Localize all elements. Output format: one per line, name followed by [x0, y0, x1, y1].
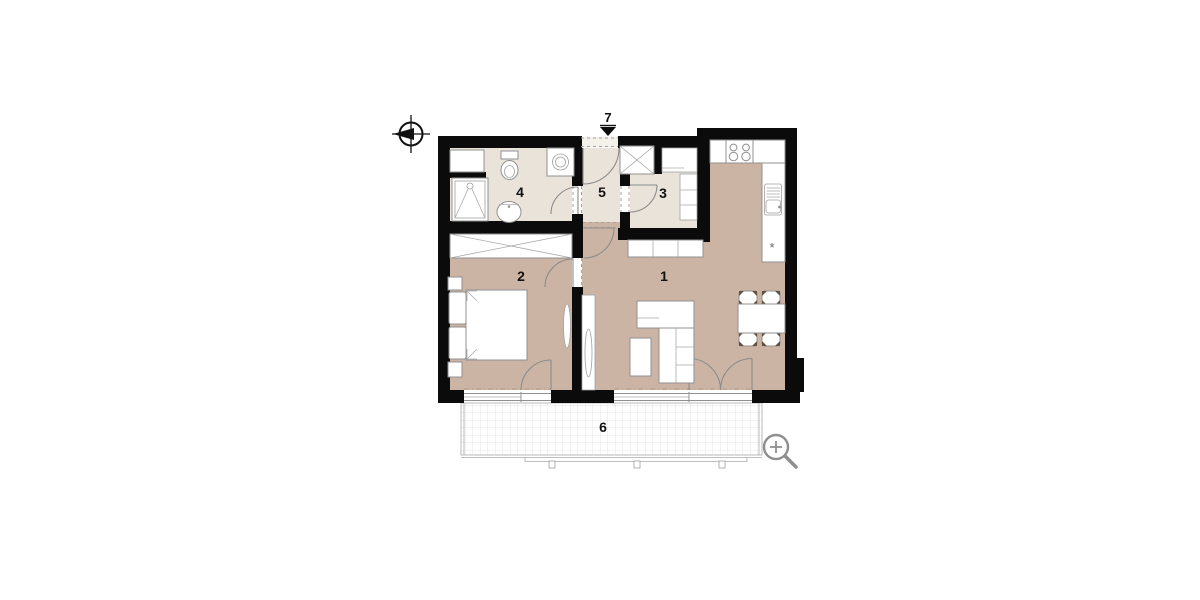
storage-label: 3 [659, 185, 667, 201]
appliance-marker: * [769, 240, 774, 255]
kitchen-tap [778, 206, 781, 209]
pillow [449, 292, 466, 324]
wall-storage-bottom [618, 228, 710, 240]
sofa-seat [659, 328, 694, 383]
wall-right [785, 128, 797, 390]
living-room-label: 1 [660, 268, 668, 284]
wall-bottom-right [752, 390, 800, 403]
dining-chair [739, 332, 757, 346]
balcony-deck [461, 403, 762, 455]
bathroom-label: 4 [516, 184, 524, 200]
bedroom-label: 2 [517, 268, 525, 284]
railing-post [719, 461, 725, 468]
pillow [449, 327, 466, 359]
wall-top-kitchen [697, 128, 797, 140]
balcony-label: 6 [599, 419, 607, 435]
coffee-table [630, 338, 651, 376]
wall-top-left [438, 136, 582, 148]
wall-right-step [797, 358, 804, 392]
compass-icon [392, 115, 430, 153]
wall-bottom-left [438, 390, 464, 403]
storage-closet [680, 174, 697, 220]
floor-plan-canvas: 7 [0, 0, 1200, 600]
nightstand [448, 277, 462, 290]
wall-stub-hall [620, 174, 630, 186]
wall-stub-hall2 [620, 212, 630, 228]
sink-tap [508, 205, 511, 208]
magnifier-handle [785, 456, 796, 467]
dining-chair [762, 332, 780, 346]
wall-niche-stub [450, 172, 486, 178]
wall-divider-mid [572, 214, 583, 258]
railing-post [634, 461, 640, 468]
wall-bottom-mid [551, 390, 614, 403]
wall-divider-lower [572, 287, 583, 390]
dining-chair [739, 291, 757, 305]
bed-mattress [466, 290, 527, 360]
sideboard [628, 240, 703, 257]
wall-storage-kitchen [697, 140, 710, 242]
sofa-chaise [637, 301, 694, 328]
toilet-tank [501, 151, 518, 159]
shower-head [467, 183, 473, 189]
wall-stub-closet [654, 143, 662, 174]
shaft-niche [450, 150, 484, 172]
railing-post [549, 461, 555, 468]
balcony [461, 403, 762, 468]
radiator-living [585, 329, 592, 377]
entrance-label: 7 [604, 110, 611, 125]
nightstand [448, 362, 462, 377]
dining-table [738, 304, 785, 333]
hallway-label: 5 [598, 184, 606, 200]
entrance-arrow-icon [600, 127, 616, 136]
magnifier-icon[interactable] [764, 435, 796, 467]
floor-plan-drawing: 7 [0, 0, 1200, 600]
dining-chair [762, 291, 780, 305]
wall-bathroom-bottom [450, 221, 582, 234]
radiator-bedroom [564, 304, 571, 348]
